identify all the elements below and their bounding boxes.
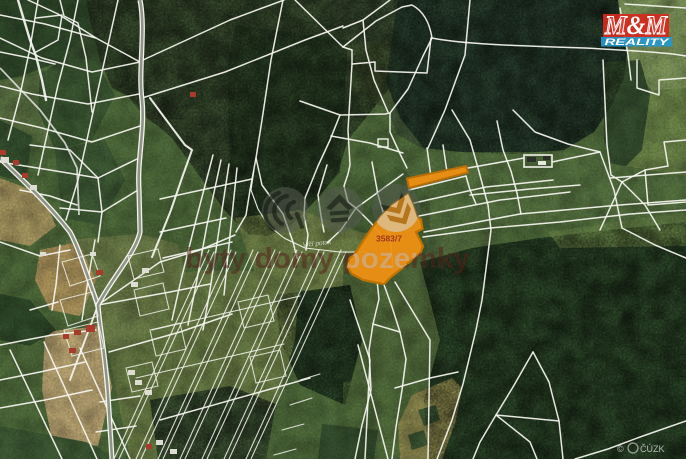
svg-text:ČÚZK: ČÚZK xyxy=(640,444,665,454)
svg-text:3583/7: 3583/7 xyxy=(376,234,402,244)
svg-text:byty domy pozemky: byty domy pozemky xyxy=(185,243,470,275)
svg-text:©: © xyxy=(617,444,624,454)
svg-text:M&M: M&M xyxy=(604,11,668,40)
svg-text:REALITY: REALITY xyxy=(605,37,671,47)
